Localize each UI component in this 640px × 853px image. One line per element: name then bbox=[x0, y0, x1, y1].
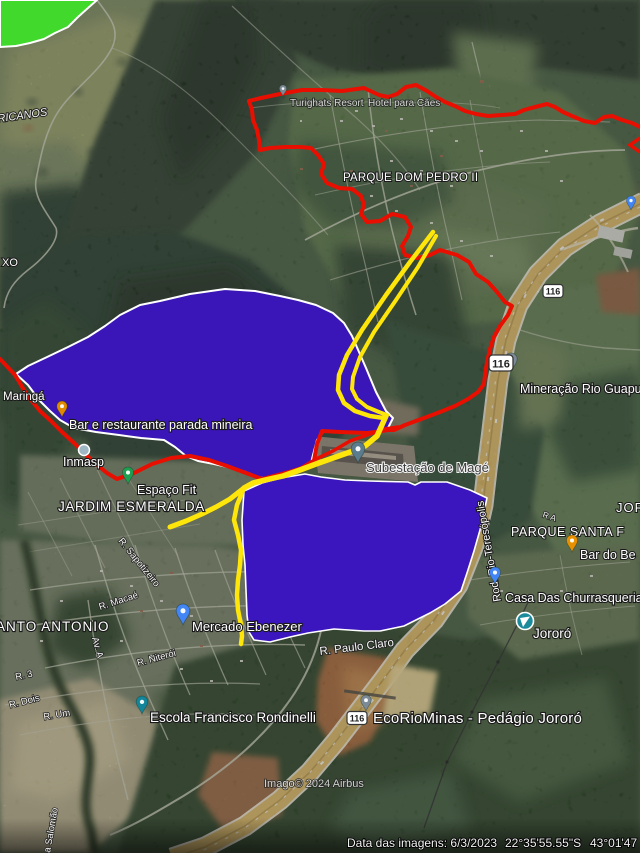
svg-text:XO: XO bbox=[2, 257, 18, 269]
svg-text:Imago© 2024 Airbus: Imago© 2024 Airbus bbox=[264, 778, 364, 790]
svg-text:ANTO ANTONIO: ANTO ANTONIO bbox=[0, 619, 110, 634]
svg-text:Bar e restaurante parada minei: Bar e restaurante parada mineira bbox=[69, 418, 252, 432]
svg-text:Maringá: Maringá bbox=[3, 391, 45, 403]
svg-text:Jororó: Jororó bbox=[533, 626, 571, 641]
svg-text:116: 116 bbox=[546, 287, 561, 297]
svg-text:PARQUE DOM PEDRO II: PARQUE DOM PEDRO II bbox=[343, 172, 478, 184]
svg-text:116: 116 bbox=[492, 359, 510, 371]
svg-text:Escola Francisco Rondinelli: Escola Francisco Rondinelli bbox=[150, 710, 316, 725]
svg-text:Espaço Fit: Espaço Fit bbox=[137, 483, 197, 497]
svg-text:Hotel para Cães: Hotel para Cães bbox=[368, 98, 440, 109]
svg-text:Subestação de Magé: Subestação de Magé bbox=[366, 460, 489, 475]
svg-text:JOR: JOR bbox=[616, 500, 640, 515]
svg-text:22°35'55.55"S: 22°35'55.55"S bbox=[505, 836, 581, 850]
svg-text:Bar do Be: Bar do Be bbox=[580, 548, 636, 562]
svg-text:116: 116 bbox=[350, 714, 365, 724]
svg-text:Casa Das Churrasqueria: Casa Das Churrasqueria bbox=[505, 591, 640, 605]
svg-text:43°01'47: 43°01'47 bbox=[590, 836, 637, 850]
svg-text:EcoRioMinas - Pedágio Jororó: EcoRioMinas - Pedágio Jororó bbox=[373, 710, 582, 727]
svg-text:JARDIM ESMERALDA: JARDIM ESMERALDA bbox=[58, 499, 205, 514]
svg-text:Inmasp: Inmasp bbox=[63, 455, 104, 469]
svg-text:Mineração Rio Guapuru: Mineração Rio Guapuru bbox=[520, 382, 640, 396]
svg-text:Data das imagens: 6/3/2023: Data das imagens: 6/3/2023 bbox=[347, 836, 497, 850]
svg-text:Turighats Resort: Turighats Resort bbox=[290, 98, 364, 109]
svg-text:Mercado Ebenezer: Mercado Ebenezer bbox=[192, 619, 303, 634]
